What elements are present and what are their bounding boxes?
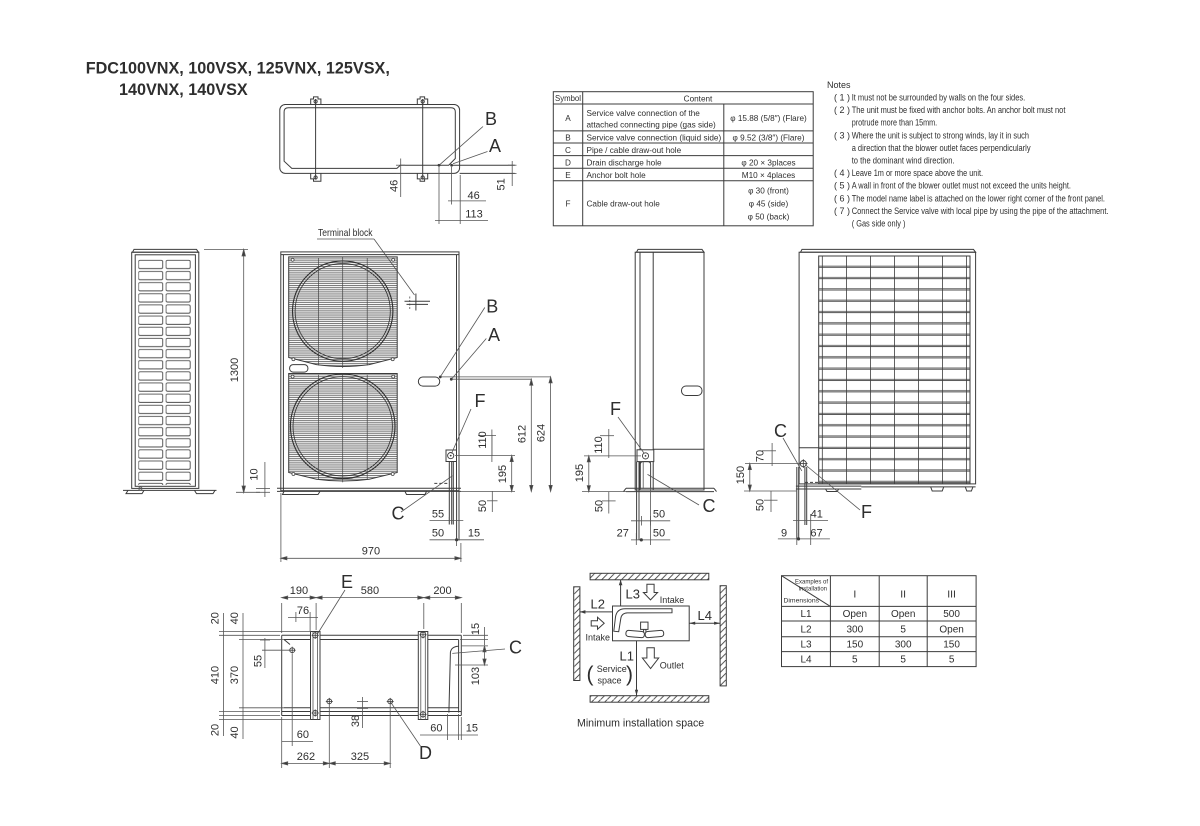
svg-text:Cable draw-out hole: Cable draw-out hole [587, 200, 661, 209]
svg-text:60: 60 [297, 729, 309, 741]
svg-text:F: F [475, 391, 486, 411]
svg-text:FDC100VNX, 100VSX, 125VNX, 125: FDC100VNX, 100VSX, 125VNX, 125VSX, [86, 60, 390, 78]
svg-text:φ 15.88 (5/8″) (Flare): φ 15.88 (5/8″) (Flare) [730, 114, 807, 123]
svg-text:15: 15 [466, 723, 478, 735]
svg-text:space: space [598, 675, 622, 685]
svg-text:1300: 1300 [229, 358, 241, 382]
svg-text:Symbol: Symbol [555, 94, 581, 103]
svg-text:Notes: Notes [827, 80, 851, 90]
svg-text:Drain discharge hole: Drain discharge hole [587, 158, 663, 167]
svg-text:( 1 ): ( 1 ) [834, 93, 850, 103]
svg-text:20: 20 [210, 724, 222, 736]
svg-text:F: F [565, 200, 570, 209]
svg-text:C: C [392, 504, 405, 524]
svg-text:40: 40 [229, 726, 241, 738]
svg-text:Open: Open [891, 609, 915, 620]
svg-text:27: 27 [617, 528, 629, 540]
svg-text:Intake: Intake [660, 595, 685, 605]
svg-text:C: C [774, 421, 787, 441]
svg-text:5: 5 [949, 654, 955, 665]
svg-text:φ 30 (front): φ 30 (front) [748, 187, 789, 196]
svg-text:500: 500 [943, 609, 960, 620]
svg-text:150: 150 [943, 640, 960, 651]
svg-text:to the dominant wind direction: to the dominant wind direction. [852, 156, 955, 166]
svg-text:50: 50 [653, 528, 665, 540]
svg-text:300: 300 [895, 640, 912, 651]
svg-text:( 6 ): ( 6 ) [834, 193, 850, 203]
svg-text:L1: L1 [800, 609, 812, 620]
svg-text:): ) [626, 663, 633, 686]
svg-text:A: A [565, 114, 571, 123]
svg-text:5: 5 [900, 654, 906, 665]
svg-text:The model name label is attach: The model name label is attached on the … [852, 193, 1105, 203]
svg-text:( 5 ): ( 5 ) [834, 181, 850, 191]
svg-text:L2: L2 [591, 597, 605, 612]
svg-text:( Gas side only ): ( Gas side only ) [852, 219, 906, 229]
svg-text:50: 50 [432, 528, 444, 540]
svg-text:III: III [947, 589, 956, 601]
svg-text:installation: installation [799, 587, 827, 593]
svg-text:Content: Content [684, 95, 713, 104]
svg-text:40: 40 [229, 612, 241, 624]
svg-text:46: 46 [467, 190, 479, 202]
svg-text:L2: L2 [800, 625, 812, 636]
svg-text:150: 150 [735, 466, 747, 484]
svg-text:262: 262 [297, 751, 315, 763]
svg-text:φ 50 (back): φ 50 (back) [748, 213, 790, 222]
svg-text:C: C [509, 638, 522, 658]
svg-text:60: 60 [430, 723, 442, 735]
svg-text:B: B [565, 134, 571, 143]
svg-text:Intake: Intake [586, 633, 611, 643]
svg-text:Anchor bolt hole: Anchor bolt hole [587, 171, 647, 180]
svg-text:70: 70 [754, 450, 766, 462]
svg-text:110: 110 [593, 436, 605, 454]
svg-text:Service valve connection of th: Service valve connection of the [587, 109, 701, 118]
svg-text:Pipe / cable draw-out hole: Pipe / cable draw-out hole [587, 146, 682, 155]
svg-text:Examples of: Examples of [795, 580, 828, 586]
svg-text:612: 612 [516, 425, 528, 443]
svg-text:D: D [565, 158, 571, 167]
svg-text:10: 10 [249, 468, 261, 480]
svg-text:Dimensions: Dimensions [784, 598, 820, 605]
svg-text:D: D [419, 743, 432, 763]
svg-text:a direction that the blower ou: a direction that the blower outlet faces… [852, 143, 1031, 153]
svg-text:103: 103 [470, 667, 482, 685]
svg-text:15: 15 [468, 528, 480, 540]
svg-text:φ 45 (side): φ 45 (side) [749, 200, 789, 209]
svg-text:Outlet: Outlet [660, 661, 685, 671]
svg-text:Where the unit is subject to s: Where the unit is subject to strong wind… [852, 130, 1029, 140]
svg-text:55: 55 [252, 655, 264, 667]
svg-text:A: A [489, 136, 501, 156]
svg-text:140VNX, 140VSX: 140VNX, 140VSX [119, 81, 248, 99]
svg-text:Connect the Service valve with: Connect the Service valve with local pip… [852, 206, 1109, 216]
svg-text:195: 195 [574, 464, 586, 482]
svg-text:300: 300 [846, 625, 863, 636]
svg-text:5: 5 [900, 625, 906, 636]
svg-text:protrude more than 15mm.: protrude more than 15mm. [852, 118, 938, 128]
svg-text:50: 50 [653, 509, 665, 521]
svg-text:195: 195 [497, 465, 509, 483]
svg-text:C: C [565, 146, 571, 155]
svg-text:970: 970 [362, 546, 380, 558]
svg-text:41: 41 [811, 508, 823, 520]
svg-text:φ 20 × 3places: φ 20 × 3places [741, 158, 795, 167]
svg-text:It must not be surrounded by w: It must not be surrounded by walls on th… [852, 93, 1025, 103]
svg-text:Terminal block: Terminal block [318, 227, 373, 239]
svg-text:( 7 ): ( 7 ) [834, 206, 850, 216]
svg-text:46: 46 [389, 180, 401, 192]
svg-text:150: 150 [846, 640, 863, 651]
svg-text:L3: L3 [800, 640, 812, 651]
svg-text:Service: Service [597, 664, 627, 674]
svg-text:E: E [341, 572, 353, 592]
svg-text:( 2 ): ( 2 ) [834, 105, 850, 115]
svg-text:I: I [853, 589, 856, 601]
svg-text:67: 67 [810, 527, 822, 539]
svg-text:5: 5 [852, 654, 858, 665]
svg-text:( 3 ): ( 3 ) [834, 130, 850, 140]
svg-text:9: 9 [781, 527, 787, 539]
svg-text:50: 50 [755, 499, 767, 511]
svg-text:B: B [486, 297, 498, 317]
svg-text:325: 325 [351, 751, 369, 763]
svg-text:Minimum installation space: Minimum installation space [577, 718, 704, 730]
svg-text:55: 55 [432, 509, 444, 521]
svg-text:76: 76 [297, 605, 309, 617]
svg-text:15: 15 [470, 623, 482, 635]
svg-text:Service valve connection (liqu: Service valve connection (liquid side) [587, 134, 722, 143]
svg-text:B: B [485, 109, 497, 129]
svg-text:50: 50 [593, 500, 605, 512]
svg-text:38: 38 [350, 715, 362, 727]
svg-text:50: 50 [477, 500, 489, 512]
svg-text:410: 410 [210, 666, 222, 684]
svg-text:II: II [900, 589, 906, 601]
svg-text:M10 × 4places: M10 × 4places [742, 171, 795, 180]
svg-text:Leave 1m or more space above t: Leave 1m or more space above the unit. [852, 168, 983, 178]
svg-text:( 4 ): ( 4 ) [834, 168, 850, 178]
svg-text:113: 113 [465, 209, 483, 221]
svg-text:L4: L4 [698, 608, 712, 623]
svg-text:L3: L3 [626, 587, 640, 602]
svg-text:580: 580 [361, 585, 379, 597]
svg-text:(: ( [587, 663, 594, 686]
svg-text:F: F [610, 399, 621, 419]
svg-text:624: 624 [536, 424, 548, 442]
svg-text:C: C [703, 496, 716, 516]
svg-text:φ 9.52 (3/8″) (Flare): φ 9.52 (3/8″) (Flare) [733, 134, 805, 143]
svg-text:370: 370 [229, 666, 241, 684]
svg-text:190: 190 [290, 585, 308, 597]
svg-text:Open: Open [939, 625, 963, 636]
svg-text:Open: Open [843, 609, 867, 620]
svg-text:20: 20 [210, 612, 222, 624]
svg-text:51: 51 [496, 178, 508, 190]
svg-text:The unit must be fixed with an: The unit must be fixed with anchor bolts… [852, 105, 1066, 115]
svg-text:110: 110 [477, 431, 489, 449]
svg-text:E: E [565, 171, 571, 180]
svg-text:A: A [488, 325, 500, 345]
svg-text:F: F [861, 502, 872, 522]
svg-text:L1: L1 [620, 649, 634, 664]
svg-text:attached connecting pipe (gas: attached connecting pipe (gas side) [587, 121, 717, 130]
svg-text:A wall in front of the blower: A wall in front of the blower outlet mus… [852, 181, 1071, 191]
svg-text:L4: L4 [800, 654, 812, 665]
svg-text:200: 200 [433, 585, 451, 597]
